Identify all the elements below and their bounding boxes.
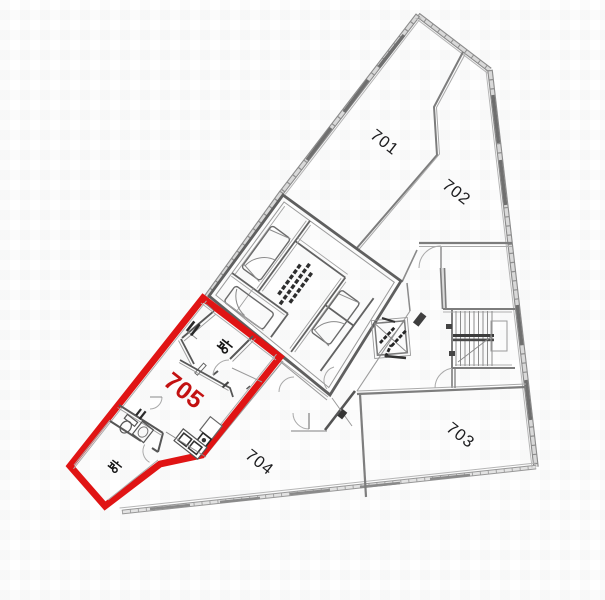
svg-text:703: 703	[443, 419, 478, 452]
svg-text:702: 702	[439, 176, 474, 209]
svg-text:701: 701	[367, 126, 402, 159]
svg-text:704: 704	[242, 446, 277, 479]
